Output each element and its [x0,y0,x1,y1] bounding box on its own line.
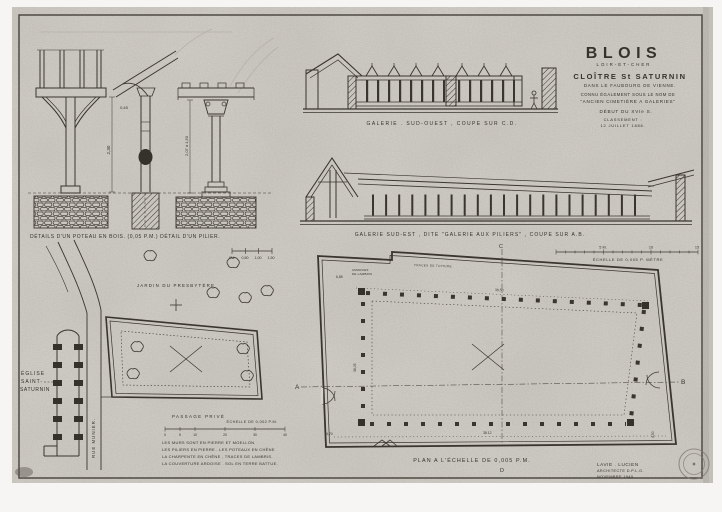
scan-smudge [15,467,33,477]
scale-tick-label: 5 [179,433,181,437]
section-marker-a: A [295,384,300,391]
section-marker-c: C [499,244,503,250]
site-scale-caption: ÉCHELLE DE 0,002 P.M. [227,419,278,424]
title-monument: CLOÎTRE St SATURNIN [573,72,686,81]
section-marker-d: D [500,468,504,474]
masonry-foundation [176,197,256,228]
title-aka-2: "ANCIEN CIMETIÈRE A GALERIES" [580,98,675,104]
dim-470: 4,70 [326,432,333,436]
title-city: BLOIS [586,45,662,62]
post-knot-mark [139,149,153,165]
grand-plan-caption: PLAN A L'ÉCHELLE DE 0,005 P.M. [413,457,531,464]
title-classement-1: CLASSEMENT : [604,117,643,122]
eglise-label-2: SAINT- [21,379,43,385]
signature-line: ARCHITECTE D.P.L.G. [597,469,644,473]
scale-tick-label: 0 [164,433,166,437]
signature-line: NOVEMBRE 1945 [597,475,633,479]
title-department: LOIR-ET-CHER [597,62,652,67]
passage-prive-label: PASSAGE PRIVÉ [172,414,225,419]
details-caption: DÉTAILS D'UN POTEAU EN BOIS. (0,05 P.M.)… [30,233,220,240]
scale-tick-label: 1,00 [255,256,262,260]
note-line: LA COUVERTURE ARDOISE . SOL EN TERRE BAT… [162,461,278,466]
section-marker-b: B [681,379,685,386]
galerie-so-caption: GALERIE . SUD-OUEST , COUPE SUR C.D. [367,121,518,127]
note-line: LA CHARPENTE EN CHÊNE , TRACES DE LAMBRI… [162,454,273,459]
scale-tick-label: 0,50 [242,256,249,260]
scale-tick-label: 10 [649,246,653,250]
scale-tick-label: 5 M. [599,246,606,250]
archive-stamp [679,449,709,479]
scale-tick-label: 20 [223,433,227,437]
scale-tick-label: 30 [253,433,257,437]
signature-line: LAVIE . LUCIEN [597,462,639,467]
note-line: LES PILIERS EN PIERRE . LES POTEAUX EN C… [162,447,275,452]
scanned-drawing-sheet: 2,30 0,45 2,07 à 1,50 [0,0,722,512]
scale-tick-label: 10 [193,433,197,437]
section-scale-caption: ÉCHELLE DE 0,005 P. MÈTRE [593,257,664,262]
eglise-label-3: SATURNIN [20,387,50,393]
note-line: LES MURS SONT EN PIERRE ET MOELLON. [162,440,256,445]
scale-tick-label: 1,50 [268,256,275,260]
dim-3812: 38.12 [483,431,492,435]
dim-045-label: 0,45 [120,105,129,110]
eglise-label-1: ÉGLISE [21,370,45,377]
galerie-se-caption: GALERIE SUD-EST , DITE "GALERIE AUX PILI… [355,232,586,238]
dim-pillar-label: 2,07 à 1,50 [184,135,189,156]
hatched-pier-base [132,193,159,229]
jardin-label: JARDIN DU PRESBYTÈRE [137,283,215,288]
scale-tick-label: 40 [283,433,287,437]
title-classement-2: 12 JUILLET 1886. [601,123,646,128]
dim-3605: 36,05 [353,363,357,372]
annotation-amorces-2: DE LAMBRIS [352,272,372,276]
dim-3850: 38,50 [495,288,504,292]
title-period: DÉBUT DU XVIe S. [599,108,652,114]
architectural-survey-drawing: 2,30 0,45 2,07 à 1,50 [0,0,722,512]
rue-munier-label: RUE MUNIER. [91,418,96,458]
masonry-foundation [34,196,108,228]
title-location: DANS LE FAUBOURG DE VIENNE. [584,83,676,88]
scale-tick-label: 15 [695,246,699,250]
dim-230-label: 2,30 [106,145,111,154]
dim-685: 6,85 [336,275,343,279]
dim-450: 4,50 [651,431,655,438]
title-aka-1: CONNU ÉGALEMENT SOUS LE NOM DE [581,92,676,97]
